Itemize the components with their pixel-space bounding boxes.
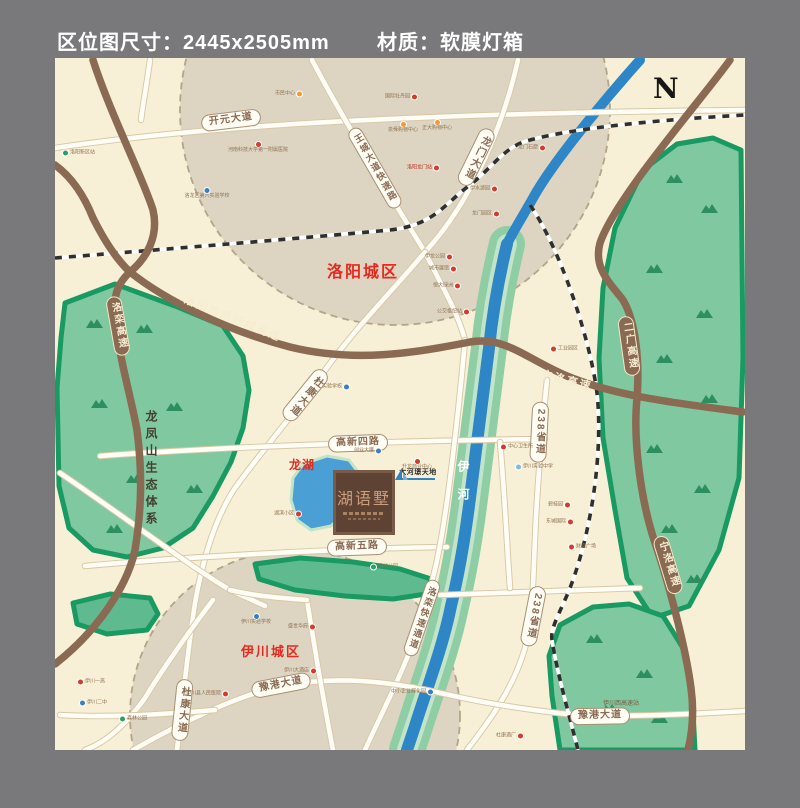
- map-canvas: 龙凤山生态体系 伊河 龙湖 伊川西高速站 N 湖语墅 大河璟天地 洛阳城区伊川城…: [55, 58, 745, 750]
- lightbox-artboard: 区位图尺寸：2445x2505mm 材质：软膜灯箱 龙凤山生态体系 伊河 龙湖 …: [0, 0, 800, 808]
- longhu-lake: [291, 456, 358, 530]
- material-label: 材质：软膜灯箱: [377, 26, 524, 55]
- map-size-label: 区位图尺寸：2445x2505mm: [57, 26, 330, 55]
- map-drawing: [55, 58, 745, 750]
